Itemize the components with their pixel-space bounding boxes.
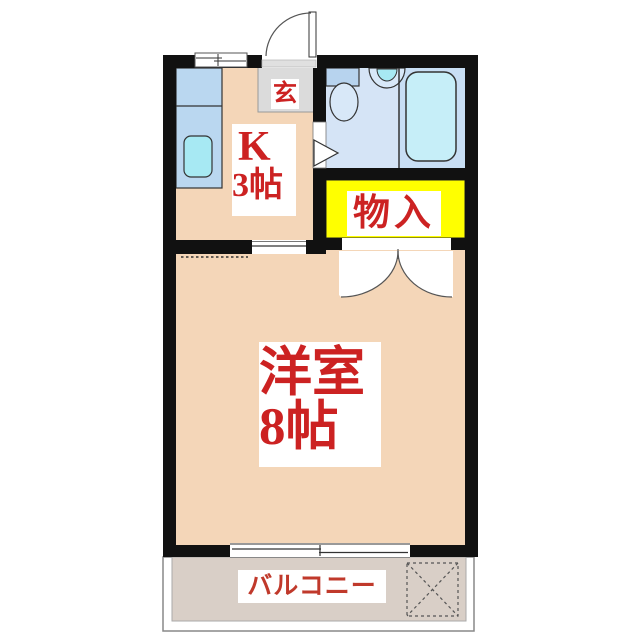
- floor-plan: 玄 K 3帖 物入 洋室 8帖 バルコニー: [0, 0, 640, 640]
- main-room-label-line1: 洋室: [259, 346, 381, 400]
- toilet-bowl: [330, 83, 358, 121]
- closet-opening: [342, 238, 451, 250]
- kitchen-label-line2: 3帖: [232, 169, 296, 204]
- entrance-door-swing-arc: [266, 13, 311, 56]
- storage-label: 物入: [347, 191, 441, 236]
- balcony-label: バルコニー: [238, 570, 386, 603]
- balcony-label-text: バルコニー: [247, 573, 377, 600]
- entrance-door-leaf: [309, 12, 316, 57]
- floor-plan-drawing: [0, 0, 640, 640]
- sliding-door-opening: [252, 240, 306, 254]
- storage-label-text: 物入: [353, 193, 435, 234]
- wall-left: [163, 55, 176, 557]
- bathtub: [406, 72, 456, 161]
- wall-storage-bottom-left: [326, 238, 342, 250]
- entrance-label: 玄: [271, 79, 299, 109]
- kitchen-counter: [176, 68, 222, 188]
- kitchen-window: [195, 53, 247, 67]
- wall-kitchen-main-right: [306, 240, 326, 254]
- wall-bath-bottom: [313, 168, 465, 180]
- balcony-window: [230, 543, 410, 558]
- main-room-label-line2: 8帖: [259, 400, 381, 454]
- wall-kitchen-main-left: [176, 240, 252, 254]
- entrance-label-text: 玄: [273, 81, 297, 107]
- kitchen-label-line1: K: [232, 126, 296, 169]
- kitchen-label: K 3帖: [232, 124, 296, 216]
- entrance-threshold: [262, 60, 316, 67]
- entrance-door: [262, 12, 317, 68]
- kitchen-sink: [184, 136, 212, 177]
- wall-storage-bottom-right: [451, 238, 465, 250]
- main-room-label: 洋室 8帖: [259, 342, 381, 467]
- wall-right: [465, 55, 478, 557]
